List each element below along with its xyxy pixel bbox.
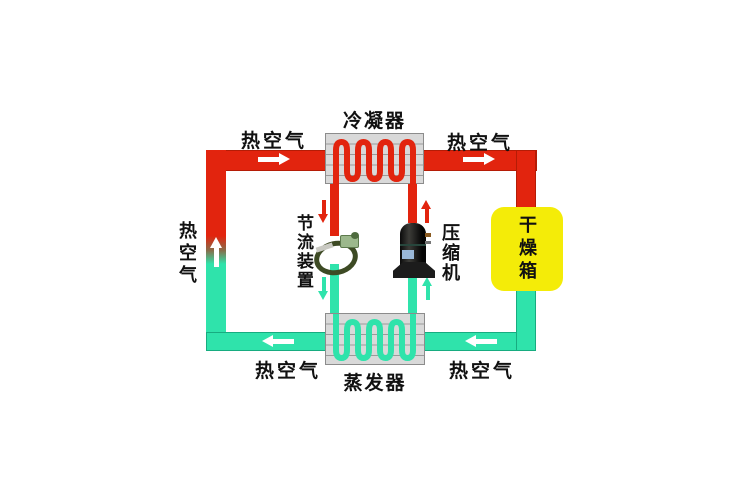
refrigerant-arrow-up-hot-icon — [421, 200, 432, 223]
compressor-pipe-stub — [425, 233, 431, 237]
hot-air-label-top-right: 热空气 — [447, 128, 513, 155]
airflow-arrow-left-bottom-left-icon — [262, 335, 294, 348]
evaporator-box — [325, 313, 425, 365]
condenser-coil — [326, 134, 425, 185]
airflow-arrow-up-left-icon — [210, 237, 223, 267]
condenser-label: 冷凝器 — [325, 106, 424, 133]
drying-box: 干燥箱 — [491, 207, 563, 291]
refrigerant-pipe-evaporator-to-compressor — [408, 274, 417, 314]
hot-air-label-bottom-right: 热空气 — [449, 356, 515, 383]
throttle-label: 节流装置 — [295, 214, 312, 290]
condenser-box — [325, 133, 424, 184]
hot-air-label-top-left: 热空气 — [241, 126, 307, 153]
hot-air-label-left: 热空气 — [178, 221, 196, 287]
refrigerant-pipe-compressor-to-condenser — [408, 183, 417, 223]
compressor-label: 压缩机 — [441, 223, 459, 283]
compressor-nameplate — [402, 250, 414, 259]
compressor-image — [393, 221, 435, 279]
drying-box-label: 干燥箱 — [518, 215, 536, 284]
refrigerant-arrow-down-hot-icon — [318, 200, 329, 223]
cold-air-duct-right — [516, 288, 536, 351]
throttle-fitting — [351, 232, 359, 239]
refrigerant-arrow-up-cold-icon — [422, 277, 433, 300]
compressor-pipe-stub-2 — [425, 241, 431, 244]
heat-pump-drying-diagram: 干燥箱 冷凝器 蒸发器 节流装置 压缩机 热空气 热空气 热空气 热空气 热空气 — [0, 0, 750, 500]
refrigerant-pipe-condenser-to-throttle — [330, 183, 339, 236]
evaporator-coil — [326, 314, 426, 366]
refrigerant-arrow-down-cold-icon — [318, 277, 329, 300]
hot-air-duct-right — [516, 150, 536, 210]
airflow-arrow-right-top-left-icon — [258, 153, 290, 166]
throttle-device-image — [313, 233, 361, 273]
airflow-arrow-left-bottom-right-icon — [465, 335, 497, 348]
hot-air-label-bottom-left: 热空气 — [255, 356, 321, 383]
evaporator-label: 蒸发器 — [325, 368, 425, 395]
compressor-seam — [400, 244, 426, 246]
